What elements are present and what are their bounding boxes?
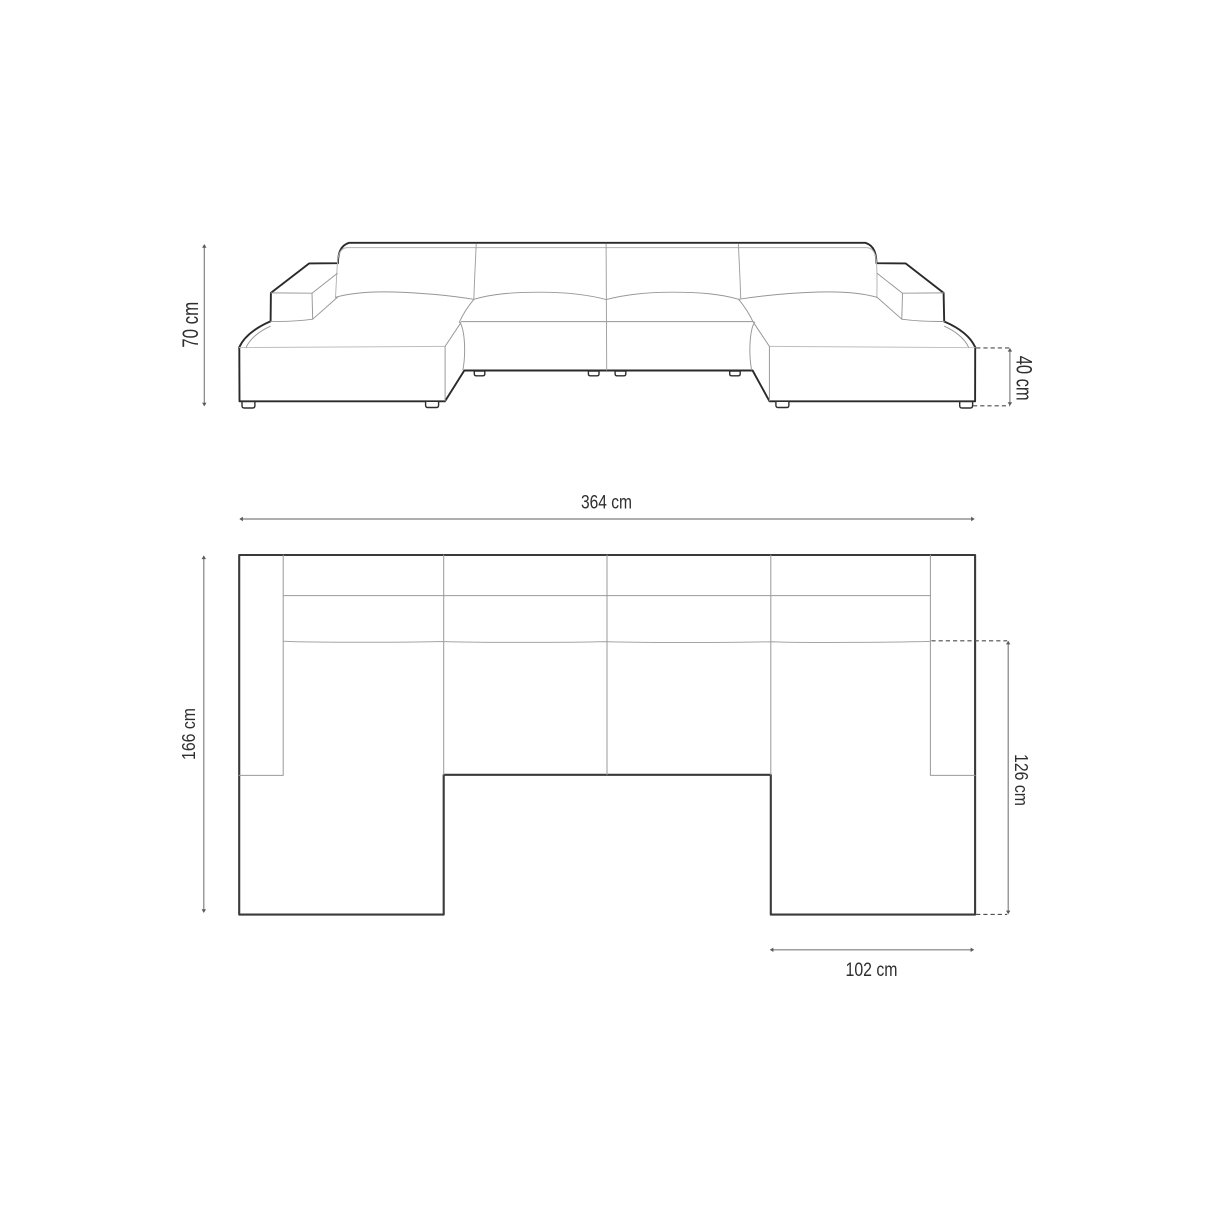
svg-text:40 cm: 40 cm: [1012, 356, 1037, 401]
svg-text:364 cm: 364 cm: [581, 493, 632, 514]
svg-text:102 cm: 102 cm: [846, 959, 898, 981]
svg-text:166 cm: 166 cm: [178, 708, 199, 760]
svg-text:126 cm: 126 cm: [1011, 754, 1032, 806]
svg-text:70 cm: 70 cm: [178, 302, 203, 348]
